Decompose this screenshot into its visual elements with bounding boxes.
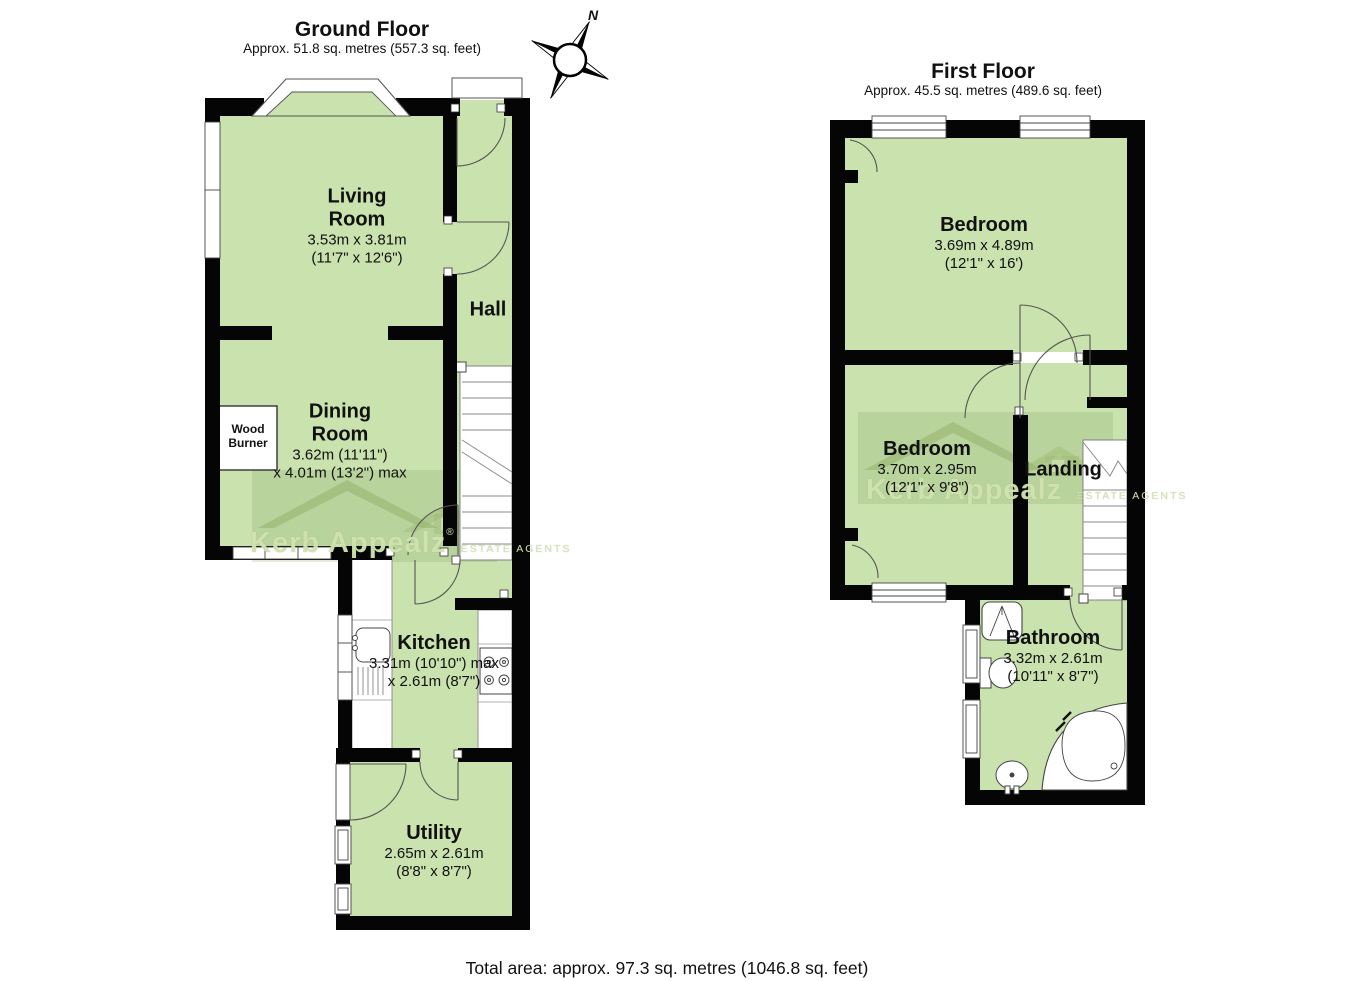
kitchen-label: Kitchen 3.31m (10'10") max x 2.61m (8'7"… (369, 632, 499, 690)
room-size-imperial: (10'11" x 8'7") (1003, 668, 1102, 685)
room-size-metric: 3.32m x 2.61m (1003, 650, 1102, 667)
bedroom-front-label: Bedroom 3.69m x 4.89m (12'1" x 16') (934, 214, 1033, 272)
room-name: Bedroom (934, 214, 1033, 237)
room-size-imperial: (12'1" x 16') (934, 255, 1033, 272)
utility-label: Utility 2.65m x 2.61m (8'8" x 8'7") (384, 822, 483, 880)
ground-floor-title: Ground Floor (295, 18, 429, 42)
total-area-text: Total area: approx. 97.3 sq. metres (104… (466, 958, 869, 978)
room-name: Utility (384, 822, 483, 845)
living-room-label: Living Room 3.53m x 3.81m (11'7" x 12'6"… (307, 185, 406, 266)
room-size-imperial: x 4.01m (13'2") max (273, 464, 406, 481)
room-size-metric: 3.62m (11'11") (273, 447, 406, 464)
room-size-imperial: (11'7" x 12'6") (307, 249, 406, 266)
bedroom-back-label: Bedroom 3.70m x 2.95m (12'1" x 9'8") (877, 438, 976, 496)
room-size-metric: 2.65m x 2.61m (384, 845, 483, 862)
room-size-imperial: (8'8" x 8'7") (384, 863, 483, 880)
bathroom-label: Bathroom 3.32m x 2.61m (10'11" x 8'7") (1003, 627, 1102, 685)
watermark-tagline: ESTATE AGENTS (1077, 490, 1188, 502)
room-name: Landing (1024, 458, 1102, 481)
room-name: Living Room (307, 185, 406, 231)
room-size-metric: 3.53m x 3.81m (307, 232, 406, 249)
room-size-metric: 3.70m x 2.95m (877, 461, 976, 478)
room-name: Kitchen (369, 632, 499, 655)
watermark-text-gf: Kerb Appealz®ESTATE AGENTS (250, 527, 571, 560)
wood-burner-label: Wood Burner (228, 423, 267, 451)
floorplan-page: Kerb Appealz®ESTATE AGENTS Kerb Appealz®… (0, 0, 1350, 981)
hall-label: Hall (470, 298, 507, 321)
watermark-reg-mark: ® (446, 527, 453, 538)
compass-north-label: N (588, 7, 598, 23)
room-size-imperial: (12'1" x 9'8") (877, 479, 976, 496)
room-size-metric: 3.31m (10'10") max (369, 655, 499, 672)
room-size-imperial: x 2.61m (8'7") (369, 673, 499, 690)
porch (452, 78, 522, 98)
watermark-brand: Kerb Appealz (250, 527, 446, 559)
bay-window (252, 79, 410, 116)
compass-icon (532, 22, 609, 99)
watermark-tagline: ESTATE AGENTS (461, 543, 572, 555)
first-floor-subtitle: Approx. 45.5 sq. metres (489.6 sq. feet) (864, 83, 1102, 99)
ground-floor-subtitle: Approx. 51.8 sq. metres (557.3 sq. feet) (243, 41, 481, 57)
room-size-metric: 3.69m x 4.89m (934, 237, 1033, 254)
room-name: Bedroom (877, 438, 976, 461)
dining-room-label: Dining Room 3.62m (11'11") x 4.01m (13'2… (273, 400, 406, 481)
room-name: Hall (470, 298, 507, 321)
room-name: Dining Room (273, 400, 406, 446)
room-name: Bathroom (1003, 627, 1102, 650)
room-name: Wood Burner (228, 423, 267, 451)
landing-label: Landing (1024, 458, 1102, 481)
first-floor-title: First Floor (931, 60, 1035, 84)
